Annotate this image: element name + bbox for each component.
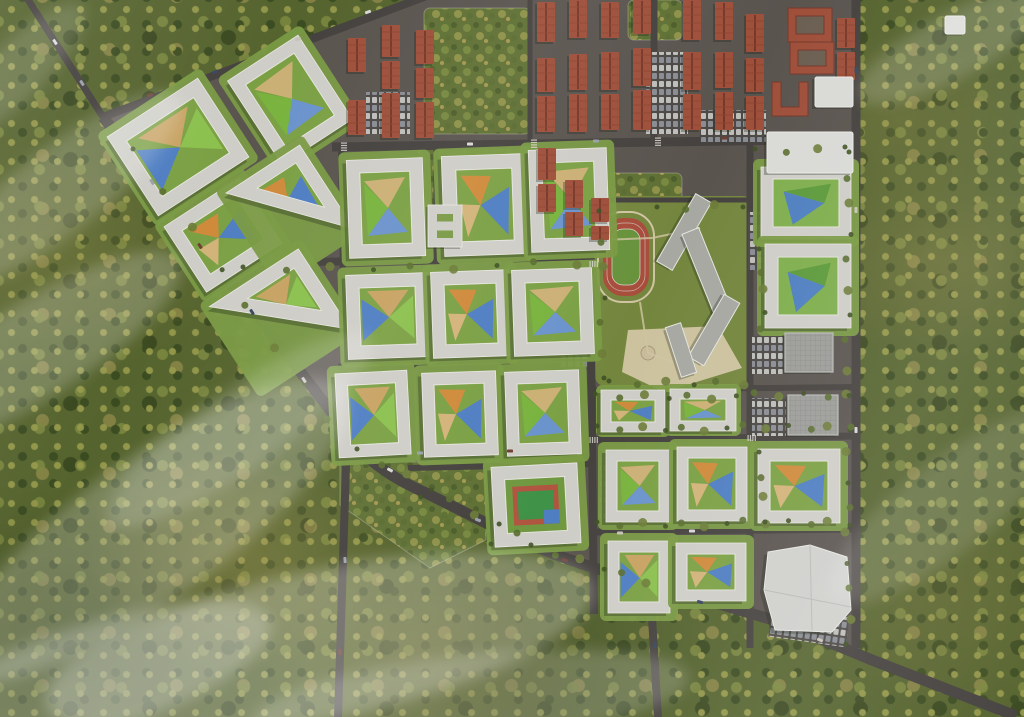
street-tree [616, 522, 623, 529]
block-r8 [600, 533, 678, 621]
street-tree [220, 267, 225, 272]
street-tree [759, 285, 768, 294]
townhouse [599, 2, 619, 40]
townhouse [567, 54, 587, 92]
street-tree [844, 286, 853, 295]
car [467, 143, 473, 146]
street-tree [786, 423, 791, 428]
street-tree [597, 209, 602, 214]
street-tree [642, 579, 651, 588]
street-tree [602, 567, 607, 572]
street-tree [326, 262, 335, 271]
street-tree [700, 522, 709, 531]
car [507, 450, 513, 453]
brick-complex [788, 8, 832, 42]
street-tree [813, 144, 822, 153]
street-tree [842, 447, 851, 456]
street-tree [640, 390, 649, 399]
townhouse [599, 94, 619, 132]
street-tree [602, 376, 607, 381]
townhouse [713, 2, 733, 42]
townhouse [631, 0, 651, 36]
car [653, 642, 656, 648]
brick-complex [790, 42, 834, 74]
street-tree [848, 313, 853, 318]
street-tree [634, 381, 641, 388]
townhouse [535, 2, 555, 44]
townhouse [414, 68, 434, 100]
parking-structure [785, 333, 833, 372]
street-tree [741, 205, 746, 210]
playground-patch [543, 509, 559, 524]
street-tree [692, 382, 697, 387]
townhouse [713, 52, 733, 90]
street-tree [529, 543, 534, 548]
street-tree [758, 474, 765, 481]
aerial-masterplan-render [0, 0, 1024, 717]
street-tree [844, 175, 851, 182]
street-tree [663, 428, 668, 433]
street-tree [449, 265, 458, 274]
block-r5 [750, 441, 848, 531]
street-tree [844, 642, 849, 647]
car [617, 532, 623, 535]
street-tree [603, 296, 608, 301]
parking-lot [752, 336, 784, 374]
townhouse [380, 25, 400, 59]
street-tree [823, 422, 832, 431]
block-j1 [503, 259, 603, 364]
street-tree [241, 302, 248, 309]
street-tree [761, 424, 770, 433]
street-tree [759, 492, 768, 501]
townhouse [681, 52, 701, 92]
street-tree [801, 391, 806, 396]
street-tree [849, 232, 854, 237]
townhouse [535, 58, 555, 94]
car [721, 137, 727, 140]
street-tree [402, 470, 411, 479]
car [855, 427, 858, 433]
street-tree [710, 200, 719, 209]
street-tree [843, 367, 852, 376]
townhouse [414, 102, 434, 140]
block-n1 [483, 454, 590, 555]
townhouse [744, 58, 764, 94]
street-tree [618, 569, 625, 576]
street-tree [825, 394, 832, 401]
street-tree [843, 145, 848, 150]
street-tree [470, 511, 479, 520]
townhouse [681, 94, 701, 132]
street-tree [355, 447, 360, 452]
street-tree [848, 424, 855, 431]
car [855, 207, 858, 213]
street-tree [712, 378, 719, 385]
townhouse [563, 212, 583, 238]
townhouse [713, 92, 733, 132]
block-rsa [596, 385, 670, 437]
street-tree [573, 261, 582, 270]
street-tree [774, 392, 783, 401]
street-tree [848, 523, 853, 528]
street-tree [753, 147, 758, 152]
street-tree [497, 522, 502, 527]
townhouse [599, 52, 619, 92]
townhouse [681, 0, 701, 42]
street-tree [734, 393, 739, 398]
street-tree [593, 392, 598, 397]
townhouse [380, 61, 400, 91]
street-tree [707, 395, 716, 404]
street-tree [847, 150, 852, 155]
street-tree [598, 239, 605, 246]
street-tree [599, 262, 608, 271]
street-tree [638, 518, 647, 527]
townhouse [744, 14, 764, 54]
street-tree [740, 381, 749, 390]
site-plan [0, 0, 1024, 717]
street-tree [739, 517, 746, 524]
street-tree [407, 263, 414, 270]
street-tree [758, 269, 765, 276]
townhouse [631, 48, 651, 88]
flat-roof-building [767, 132, 853, 173]
block-r2 [757, 236, 859, 336]
street-tree [700, 427, 709, 436]
street-tree [552, 552, 559, 559]
street-tree [763, 520, 768, 525]
street-tree [842, 336, 849, 343]
street-tree [846, 481, 851, 486]
street-tree [595, 424, 600, 429]
flat-roof-building [815, 77, 853, 107]
street-tree [786, 518, 791, 523]
street-tree [757, 450, 762, 455]
street-tree [763, 310, 768, 315]
street-tree [847, 504, 854, 511]
street-tree [441, 512, 448, 519]
street-tree [607, 379, 612, 384]
street-tree [751, 389, 758, 396]
block-small-b [426, 205, 462, 249]
street-tree [446, 496, 453, 503]
street-tree [783, 149, 790, 156]
townhouse [563, 180, 583, 210]
street-tree [757, 326, 764, 333]
townhouse [631, 90, 651, 132]
street-tree [847, 393, 852, 398]
tree-patch [424, 8, 530, 134]
street-tree [463, 522, 472, 531]
townhouse [536, 184, 556, 214]
street-tree [159, 188, 166, 195]
street-tree [241, 265, 246, 270]
street-tree [808, 426, 815, 433]
street-tree [845, 199, 854, 208]
car [343, 557, 346, 563]
street-tree [514, 530, 521, 537]
street-tree [429, 488, 434, 493]
street-tree [371, 267, 376, 272]
street-tree [661, 377, 670, 386]
street-tree [489, 542, 494, 547]
block-m1 [496, 361, 589, 464]
street-tree [678, 424, 685, 431]
street-tree [667, 396, 672, 401]
street-tree [597, 319, 604, 326]
street-tree [283, 267, 290, 274]
street-tree [808, 521, 815, 528]
townhouse [535, 96, 555, 134]
townhouse [346, 100, 366, 137]
block-r9 [668, 535, 754, 609]
car [855, 67, 858, 73]
street-tree [530, 258, 537, 265]
street-tree [378, 462, 385, 469]
block-r7 [669, 439, 755, 529]
car [417, 452, 423, 455]
street-tree [616, 426, 623, 433]
townhouse [380, 93, 400, 140]
street-tree [663, 524, 668, 529]
street-tree [655, 205, 660, 210]
street-tree [739, 421, 746, 428]
fog-wisp [843, 0, 1024, 125]
townhouse [536, 148, 556, 182]
street-tree [638, 422, 647, 431]
street-tree [725, 426, 730, 431]
block-l1 [413, 362, 506, 465]
townhouse [744, 96, 764, 132]
street-tree [823, 517, 832, 526]
street-tree [757, 247, 762, 252]
townhouse [567, 94, 587, 134]
street-tree [495, 263, 500, 268]
street-tree [270, 343, 279, 352]
street-tree [616, 394, 623, 401]
townhouse [835, 18, 855, 50]
street-tree [595, 520, 600, 525]
street-tree [847, 615, 856, 624]
townhouse [346, 38, 366, 74]
street-tree [188, 223, 197, 232]
street-tree [419, 495, 424, 500]
street-tree [683, 392, 690, 399]
townhouse [414, 30, 434, 66]
street-tree [841, 528, 850, 537]
street-tree [575, 554, 584, 563]
street-tree [678, 520, 685, 527]
street-tree [843, 256, 850, 263]
street-tree [682, 206, 689, 213]
car [689, 530, 695, 533]
street-tree [598, 349, 607, 358]
block-c1 [338, 149, 434, 266]
car [593, 140, 599, 143]
street-tree [725, 521, 730, 526]
block-r6 [598, 442, 678, 530]
townhouse [567, 0, 587, 40]
